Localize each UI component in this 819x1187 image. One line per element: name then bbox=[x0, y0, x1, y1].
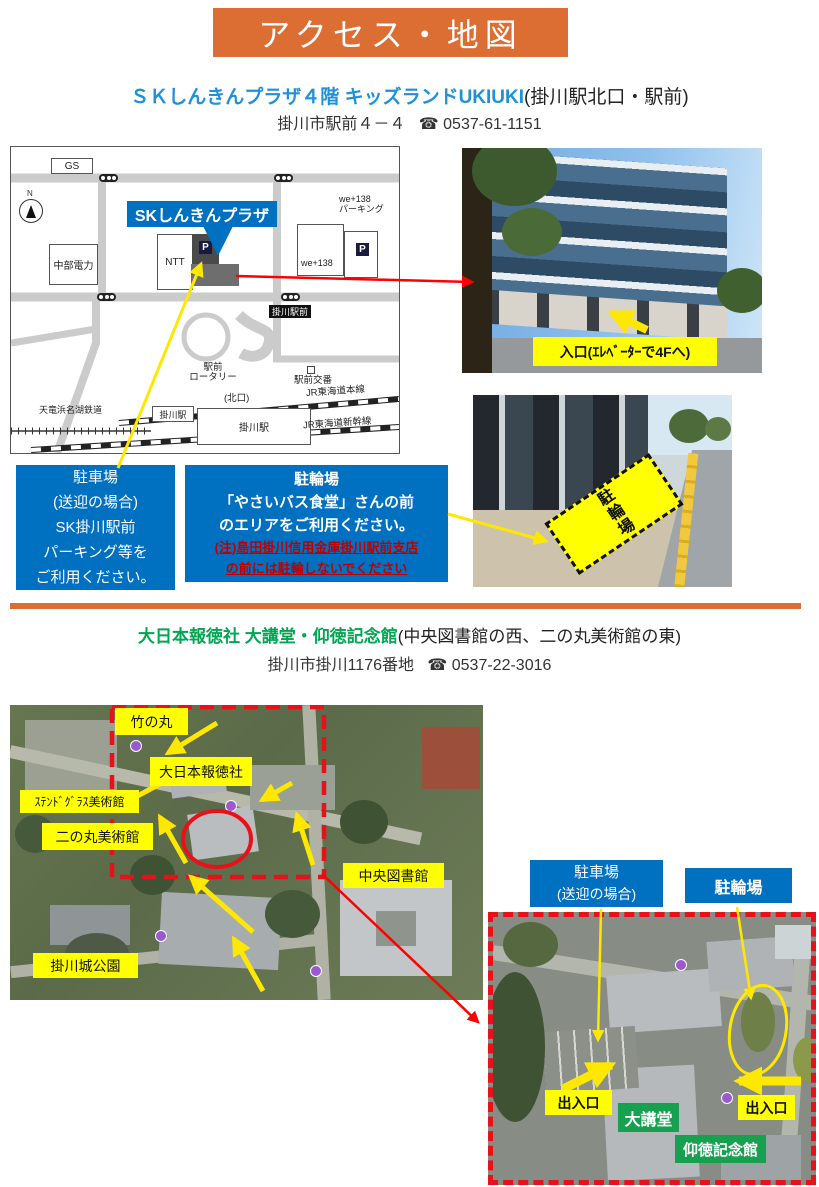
map-kakegawa-station: 掛川駅 bbox=[197, 408, 311, 445]
phone-icon: ☎ bbox=[427, 657, 447, 674]
entrance-label: 入口(ｴﾚﾍﾞｰﾀｰで4Fへ) bbox=[533, 337, 717, 366]
bicycle-warning-line: の前には駐輪しないでください bbox=[185, 558, 448, 579]
parking-stripes bbox=[543, 1026, 639, 1094]
bicycle-parking-info-box: 駐輪場 「やさいバス食堂」さんの前 のエリアをご利用ください。 (注)島田掛川信… bbox=[185, 465, 448, 582]
foliage bbox=[717, 268, 762, 313]
trees bbox=[503, 922, 558, 967]
route-arrow bbox=[160, 817, 186, 863]
street-map: GS N 中部電力 NTT P we+138 P we+138 パーキング SK… bbox=[10, 146, 400, 454]
aerial-photo-overview: 竹の丸 大日本報徳社 ｽﾃﾝﾄﾞｸﾞﾗｽ美術館 二の丸美術館 中央図書館 掛川城… bbox=[10, 705, 483, 1000]
section1-venue-note: (掛川駅北口・駅前) bbox=[524, 87, 689, 108]
page-title: アクセス・地図 bbox=[258, 10, 522, 56]
trees bbox=[130, 855, 175, 895]
sk-plaza-callout: SKしんきんプラザ bbox=[127, 201, 277, 227]
compass-needle-icon bbox=[26, 205, 36, 218]
map-koban-label: 駅前交番 bbox=[294, 376, 332, 386]
trees bbox=[741, 992, 775, 1052]
parking-lot bbox=[250, 765, 335, 810]
section2-venue-name: 大日本報徳社 大講堂・仰徳記念館 bbox=[138, 627, 398, 646]
section2-phone: 0537-22-3016 bbox=[452, 657, 552, 674]
north-compass-icon: N bbox=[19, 199, 43, 223]
inset-car-parking-label: 駐車場 (送迎の場合) bbox=[530, 860, 663, 907]
library-courtyard bbox=[376, 911, 416, 946]
ninomaru-museum-label: 二の丸美術館 bbox=[42, 823, 153, 850]
section2-address-line: 掛川市掛川1176番地 ☎ 0537-22-3016 bbox=[0, 651, 819, 675]
red-roof-building bbox=[422, 727, 480, 789]
aerial-photo-inset: 出入口 出入口 大講堂 仰徳記念館 bbox=[488, 912, 816, 1185]
map-pin-icon bbox=[155, 930, 167, 942]
castle-roof bbox=[158, 892, 282, 970]
inset-bicycle-label: 駐輪場 bbox=[685, 868, 792, 903]
trees bbox=[340, 800, 388, 844]
section1-heading: ＳＫしんきんプラザ４階 キッズランドUKIUKI(掛川駅北口・駅前) bbox=[0, 82, 819, 109]
section2-address: 掛川市掛川1176番地 bbox=[268, 657, 414, 674]
foliage bbox=[669, 409, 709, 443]
main-hall-label: 大講堂 bbox=[618, 1103, 679, 1132]
map-ntt-building: NTT bbox=[157, 234, 193, 290]
phone-icon: ☎ bbox=[419, 116, 439, 133]
building-roof bbox=[775, 925, 816, 959]
building-roof bbox=[187, 806, 259, 861]
map-we138-parking-label: we+138 パーキング bbox=[339, 195, 384, 215]
title-banner: アクセス・地図 bbox=[213, 8, 568, 57]
bicycle-area-photo: 駐輪場 bbox=[473, 395, 732, 587]
crosswalk-icon bbox=[274, 174, 293, 182]
compass-n-label: N bbox=[27, 189, 33, 198]
map-kakegawa-station-small: 掛川駅 bbox=[152, 406, 194, 422]
trees bbox=[793, 1037, 816, 1082]
map-pin-icon bbox=[721, 1092, 733, 1104]
section1-address-line: 掛川市駅前４－４ ☎ 0537-61-1151 bbox=[0, 110, 819, 134]
crosswalk-icon bbox=[99, 174, 118, 182]
exit-label-left: 出入口 bbox=[545, 1090, 612, 1115]
bicycle-warning-line: (注)島田掛川信用金庫掛川駅前支店 bbox=[185, 537, 448, 558]
access-map-flyer: アクセス・地図 ＳＫしんきんプラザ４階 キッズランドUKIUKI(掛川駅北口・駅… bbox=[0, 0, 819, 1187]
map-rotary-label: 駅前 ロータリー bbox=[187, 363, 239, 384]
map-pin-icon bbox=[675, 959, 687, 971]
map-pin-icon bbox=[225, 800, 237, 812]
section1-phone: 0537-61-1151 bbox=[443, 116, 541, 133]
map-ekimae-label: 掛川駅前 bbox=[269, 305, 311, 318]
koban-marker-icon bbox=[307, 366, 315, 374]
trees bbox=[488, 972, 545, 1122]
stained-glass-museum-label: ｽﾃﾝﾄﾞｸﾞﾗｽ美術館 bbox=[20, 790, 139, 813]
crosswalk-icon bbox=[97, 293, 116, 301]
map-gs-station: GS bbox=[51, 158, 93, 174]
building-photo: 入口(ｴﾚﾍﾞｰﾀｰで4Fへ) bbox=[462, 148, 762, 373]
takenomaru-label: 竹の丸 bbox=[115, 708, 188, 735]
map-sk-plaza-building bbox=[191, 264, 239, 286]
building-roof bbox=[606, 968, 722, 1034]
section-divider bbox=[10, 603, 801, 609]
section2-venue-note: (中央図書館の西、二の丸美術館の東) bbox=[398, 627, 681, 646]
map-kitaguchi-label: (北口) bbox=[224, 394, 249, 404]
section1-venue-name: ＳＫしんきんプラザ４階 キッズランドUKIUKI bbox=[130, 87, 524, 108]
section1-address: 掛川市駅前４－４ bbox=[277, 116, 405, 133]
bicycle-zone-label: 駐輪場 bbox=[589, 485, 639, 543]
map-pin-icon bbox=[130, 740, 142, 752]
parking-p-icon: P bbox=[356, 243, 369, 256]
crosswalk-icon bbox=[281, 293, 300, 301]
exit-label-right: 出入口 bbox=[738, 1095, 795, 1120]
map-pin-icon bbox=[310, 965, 322, 977]
foliage bbox=[502, 208, 562, 256]
section2-heading: 大日本報徳社 大講堂・仰徳記念館(中央図書館の西、二の丸美術館の東) bbox=[0, 622, 819, 647]
castle-park-label: 掛川城公園 bbox=[33, 953, 138, 978]
callout-pointer-icon bbox=[203, 226, 233, 256]
central-library-label: 中央図書館 bbox=[343, 863, 444, 888]
foliage bbox=[705, 417, 731, 441]
road bbox=[302, 705, 330, 1000]
hotokusha-label: 大日本報徳社 bbox=[150, 757, 252, 786]
map-chubu-denryoku: 中部電力 bbox=[49, 244, 98, 285]
memorial-hall-label: 仰徳記念館 bbox=[675, 1135, 766, 1163]
map-tenhama-line-label: 天竜浜名湖鉄道 bbox=[39, 406, 102, 416]
car-parking-info-box: 駐車場 (送迎の場合) SK掛川駅前 パーキング等を ご利用ください。 bbox=[16, 465, 175, 590]
trees bbox=[265, 890, 320, 938]
map-we138-building: we+138 bbox=[297, 224, 344, 276]
